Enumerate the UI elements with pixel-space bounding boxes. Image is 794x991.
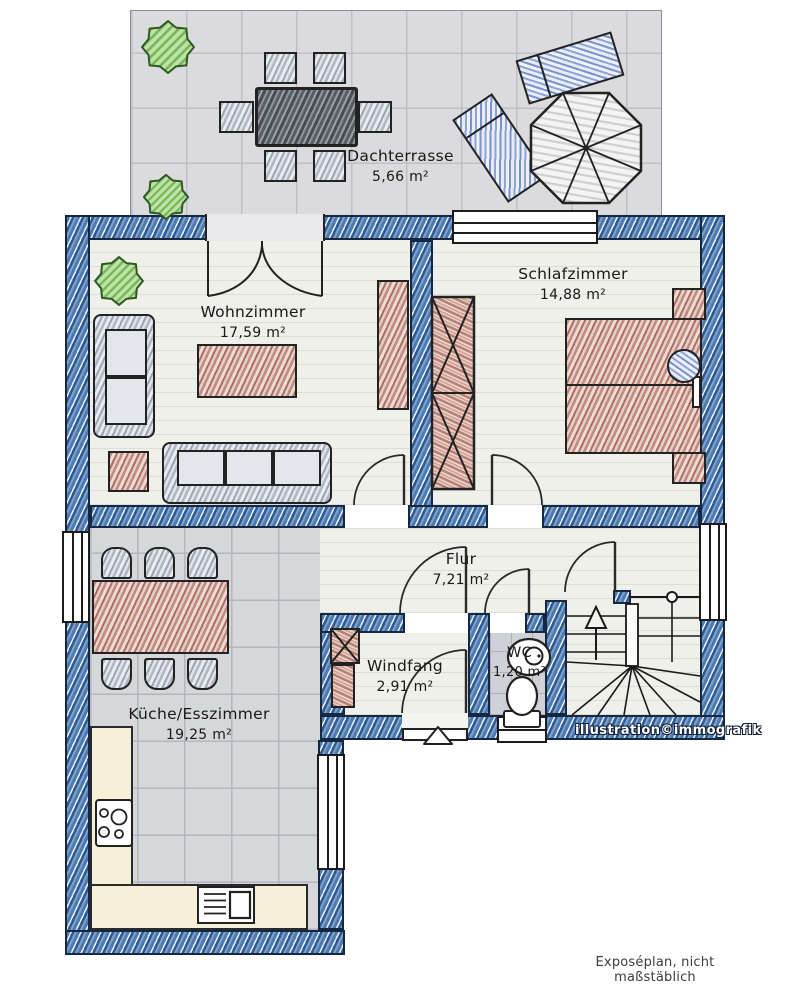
wall-wc-top-stub — [525, 613, 545, 633]
sideboard — [377, 280, 409, 410]
bed-headboard-detail — [692, 376, 701, 408]
room-name: Wohnzimmer — [173, 302, 333, 323]
kitchen-sink — [197, 886, 255, 924]
wall-mid-a — [90, 505, 345, 528]
wall-top — [65, 215, 725, 240]
dining-chair — [187, 547, 218, 579]
dining-chair — [144, 658, 175, 690]
coffee-table — [197, 344, 297, 398]
terrace-chair — [264, 52, 297, 84]
room-name: Dachterrasse — [318, 146, 483, 167]
room-label-kueche: Küche/Esszimmer 19,25 m² — [119, 704, 279, 746]
wall-stairs-top-stub — [613, 590, 631, 604]
sofa-two-seat — [93, 314, 155, 438]
wc-window-bottom — [497, 716, 547, 743]
room-name: Windfang — [345, 656, 465, 677]
floor-plan: Dachterrasse 5,66 m² — [0, 0, 794, 991]
side-table — [108, 451, 149, 492]
dining-chair — [101, 547, 132, 579]
terrace-dining-table — [255, 87, 358, 147]
wall-mid-b — [408, 505, 488, 528]
double-bed — [565, 318, 702, 454]
dining-table — [92, 580, 229, 654]
room-area: 19,25 m² — [119, 725, 279, 746]
nightstand — [672, 288, 706, 320]
room-name: WC — [482, 644, 557, 663]
room-label-wohnzimmer: Wohnzimmer 17,59 m² — [173, 302, 333, 344]
room-area: 1,20 m² — [482, 663, 557, 682]
footer-note: Exposéplan, nicht maßstäblich — [565, 955, 745, 985]
wall-windfang-top — [320, 613, 405, 633]
stairs-floor — [567, 604, 700, 715]
wall-mid-c — [542, 505, 700, 528]
room-area: 17,59 m² — [173, 323, 333, 344]
room-label-dachterrasse: Dachterrasse 5,66 m² — [318, 146, 483, 188]
room-area: 2,91 m² — [345, 677, 465, 698]
cooktop — [95, 799, 133, 847]
terrace-chair — [313, 52, 346, 84]
dining-chair — [101, 658, 132, 690]
terrace-door-opening — [205, 214, 325, 241]
wall-bottom-kitchen — [65, 930, 345, 955]
room-label-windfang: Windfang 2,91 m² — [345, 656, 465, 698]
kitchen-window-right — [317, 754, 345, 870]
room-name: Flur — [401, 549, 521, 570]
room-name: Küche/Esszimmer — [119, 704, 279, 725]
stairs-window-right — [699, 523, 727, 621]
dining-chair — [144, 547, 175, 579]
watermark: illustration©immografik — [575, 723, 725, 738]
room-name: Schlafzimmer — [493, 264, 653, 285]
terrace-chair — [358, 101, 392, 133]
entrance-threshold — [402, 728, 468, 741]
terrace-chair — [219, 101, 254, 133]
room-label-schlafzimmer: Schlafzimmer 14,88 m² — [493, 264, 653, 306]
room-area: 7,21 m² — [401, 570, 521, 591]
room-area: 14,88 m² — [493, 285, 653, 306]
dining-chair — [187, 658, 218, 690]
room-label-flur: Flur 7,21 m² — [401, 549, 521, 591]
nightstand — [672, 452, 706, 484]
sofa-three-seat — [162, 442, 332, 504]
terrace-chair — [264, 150, 297, 182]
schlafzimmer-window — [452, 210, 598, 244]
room-area: 5,66 m² — [318, 167, 483, 188]
round-side-table — [667, 349, 701, 383]
wall-divider-wohn-schlaf — [410, 240, 433, 528]
kitchen-window-left — [62, 531, 90, 623]
room-label-wc: WC 1,20 m² — [482, 644, 557, 682]
